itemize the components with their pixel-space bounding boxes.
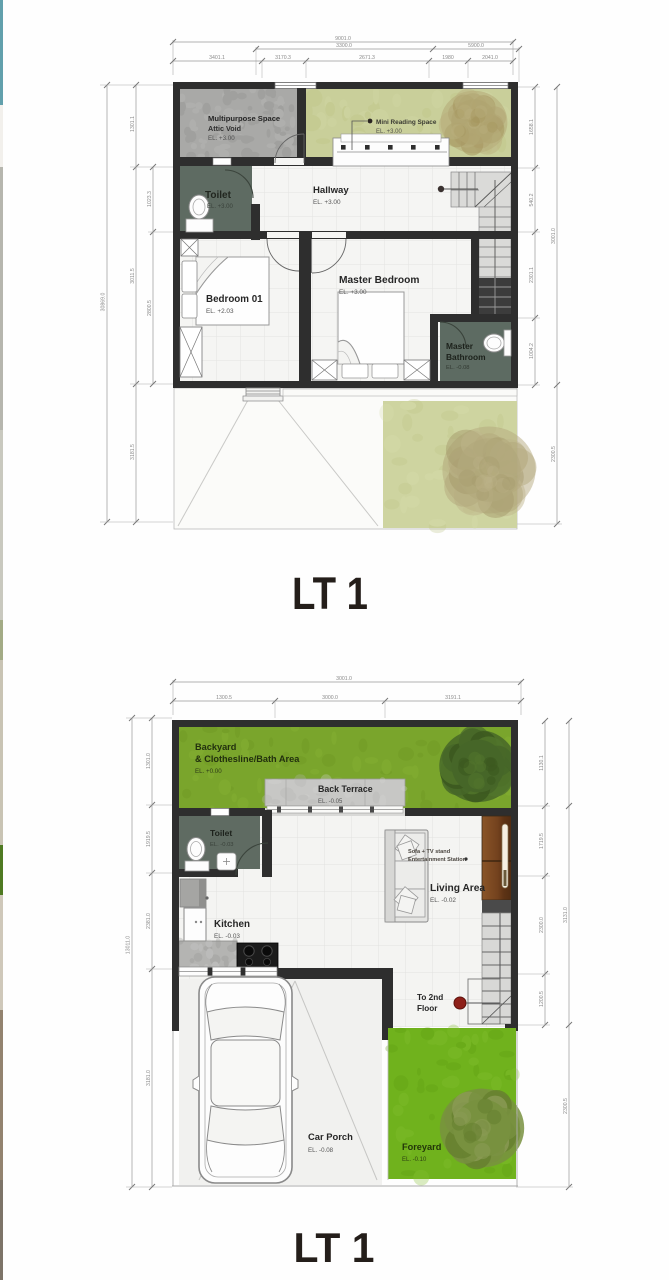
svg-text:3000.0: 3000.0	[322, 695, 338, 701]
svg-text:3001.0: 3001.0	[551, 228, 557, 244]
svg-text:2381.0: 2381.0	[146, 913, 152, 929]
svg-text:Sofa + TV stand: Sofa + TV stand	[408, 849, 451, 855]
svg-text:2671.3: 2671.3	[359, 55, 375, 61]
svg-text:Floor: Floor	[417, 1004, 438, 1013]
svg-text:Kitchen: Kitchen	[214, 919, 250, 930]
svg-text:1919.5: 1919.5	[146, 831, 152, 847]
svg-text:EL. +3.00: EL. +3.00	[376, 129, 403, 135]
svg-text:Entertainment Station: Entertainment Station	[408, 857, 467, 863]
svg-text:2300.0: 2300.0	[539, 917, 545, 933]
svg-text:EL. -0.02: EL. -0.02	[430, 897, 456, 904]
svg-text:Backyard: Backyard	[195, 742, 236, 752]
svg-text:Foreyard: Foreyard	[402, 1142, 441, 1152]
svg-text:2301.1: 2301.1	[529, 267, 535, 283]
svg-text:Hallway: Hallway	[313, 185, 349, 196]
svg-text:LT 1: LT 1	[292, 568, 368, 619]
svg-text:Attic Void: Attic Void	[208, 124, 241, 133]
svg-text:EL. -0.10: EL. -0.10	[402, 1157, 427, 1163]
svg-text:EL. -0.08: EL. -0.08	[308, 1147, 334, 1154]
svg-text:13011.0: 13011.0	[126, 936, 132, 954]
svg-text:EL. +0.00: EL. +0.00	[195, 768, 222, 775]
svg-text:3401.1: 3401.1	[209, 55, 225, 61]
svg-text:To 2nd: To 2nd	[417, 993, 443, 1002]
svg-text:EL. +2.03: EL. +2.03	[206, 308, 234, 315]
svg-text:3300.0: 3300.0	[336, 43, 352, 49]
svg-text:2800.5: 2800.5	[147, 300, 153, 316]
svg-text:3170.3: 3170.3	[275, 55, 291, 61]
svg-text:2300.5: 2300.5	[551, 446, 557, 462]
svg-text:LT 1: LT 1	[294, 1224, 375, 1271]
svg-text:1658.1: 1658.1	[529, 119, 535, 135]
svg-text:1300.5: 1300.5	[216, 695, 232, 701]
svg-text:3011.5: 3011.5	[130, 268, 136, 284]
svg-text:Bathroom: Bathroom	[446, 352, 486, 362]
svg-text:9001.0: 9001.0	[335, 36, 351, 42]
svg-text:1980: 1980	[442, 55, 454, 61]
svg-text:Bedroom 01: Bedroom 01	[206, 294, 263, 305]
svg-text:Mini Reading Space: Mini Reading Space	[376, 119, 437, 126]
svg-text:3001.0: 3001.0	[336, 676, 352, 682]
svg-text:Multipurpose Space: Multipurpose Space	[208, 114, 280, 123]
svg-text:Car Porch: Car Porch	[308, 1131, 353, 1142]
svg-text:1719.5: 1719.5	[539, 833, 545, 849]
svg-text:& Clothesline/Bath Area: & Clothesline/Bath Area	[195, 754, 300, 764]
svg-text:1301.1: 1301.1	[130, 116, 136, 132]
svg-text:1130.1: 1130.1	[539, 755, 545, 771]
svg-text:EL. +3.00: EL. +3.00	[339, 289, 367, 296]
svg-text:Living Area: Living Area	[430, 883, 485, 894]
svg-text:EL. +3.00: EL. +3.00	[207, 204, 234, 210]
svg-text:EL. -0.05: EL. -0.05	[318, 799, 343, 805]
svg-text:3191.1: 3191.1	[445, 695, 461, 701]
svg-text:EL. +3.00: EL. +3.00	[313, 199, 341, 206]
svg-text:540.2: 540.2	[529, 193, 535, 206]
svg-text:3181.0: 3181.0	[146, 1070, 152, 1086]
svg-text:3181.5: 3181.5	[130, 444, 136, 460]
svg-text:Back Terrace: Back Terrace	[318, 784, 373, 794]
svg-text:2300.5: 2300.5	[563, 1098, 569, 1114]
svg-text:EL. +3.00: EL. +3.00	[208, 135, 235, 142]
svg-text:30869.0: 30869.0	[101, 293, 107, 312]
svg-text:1004.2: 1004.2	[529, 343, 535, 359]
svg-text:EL. -0.03: EL. -0.03	[210, 842, 234, 848]
svg-text:Toilet: Toilet	[210, 828, 232, 838]
svg-text:1301.0: 1301.0	[146, 753, 152, 769]
svg-text:2041.0: 2041.0	[482, 55, 498, 61]
svg-text:EL. -0.08: EL. -0.08	[446, 365, 470, 371]
svg-text:1023.3: 1023.3	[147, 191, 153, 207]
svg-text:3131.0: 3131.0	[563, 907, 569, 923]
svg-text:Master Bedroom: Master Bedroom	[339, 275, 419, 286]
svg-text:EL. -0.03: EL. -0.03	[214, 933, 240, 940]
svg-text:Toilet: Toilet	[205, 190, 232, 201]
svg-text:1200.5: 1200.5	[539, 991, 545, 1007]
svg-text:5900.0: 5900.0	[468, 43, 484, 49]
svg-text:Master: Master	[446, 341, 474, 351]
